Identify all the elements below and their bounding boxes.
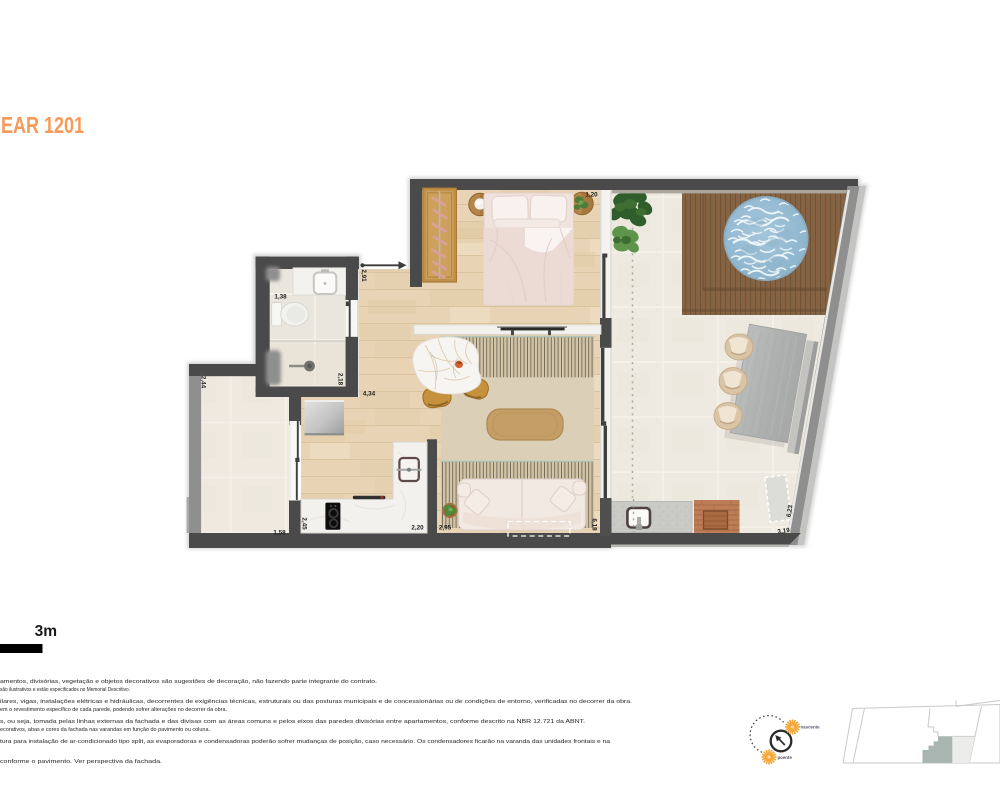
svg-text:poente: poente xyxy=(778,755,793,760)
svg-text:3m: 3m xyxy=(35,623,57,640)
svg-text:2,20: 2,20 xyxy=(411,525,424,532)
svg-text:ecorativos, abas e cores da fa: ecorativos, abas e cores da fachada nas … xyxy=(0,727,210,733)
svg-text:2,18: 2,18 xyxy=(337,373,344,386)
svg-text:2,95: 2,95 xyxy=(439,524,452,531)
svg-text:6,18: 6,18 xyxy=(591,518,598,531)
svg-text:2,91: 2,91 xyxy=(360,269,367,282)
svg-text:tura para instalação de ar-con: tura para instalação de ar-condicionado … xyxy=(0,739,611,745)
svg-text:s, ou seja, tomada pelas linha: s, ou seja, tomada pelas linhas externas… xyxy=(0,719,585,725)
svg-text:LINEAR 1201: LINEAR 1201 xyxy=(0,112,84,138)
svg-text:nascente: nascente xyxy=(801,724,821,729)
svg-text:1,58: 1,58 xyxy=(273,530,286,537)
svg-text:são ilustrativos e estão espec: são ilustrativos e estão especificados n… xyxy=(0,687,130,693)
svg-text:amentos, divisórias, vegetação: amentos, divisórias, vegetação e objetos… xyxy=(0,679,377,685)
svg-text:conforme o pavimento. Ver pers: conforme o pavimento. Ver perspectiva da… xyxy=(0,759,162,765)
svg-text:2,45: 2,45 xyxy=(301,517,308,530)
svg-text:ilares, vigas, instalações elé: ilares, vigas, instalações elétricas e h… xyxy=(0,699,632,705)
svg-text:1,38: 1,38 xyxy=(274,294,287,301)
svg-text:2,44: 2,44 xyxy=(200,376,207,389)
svg-text:4,34: 4,34 xyxy=(363,391,376,398)
svg-text:1,20: 1,20 xyxy=(585,192,598,199)
svg-text:em o revestimento específico d: em o revestimento específico de cada par… xyxy=(0,707,227,713)
